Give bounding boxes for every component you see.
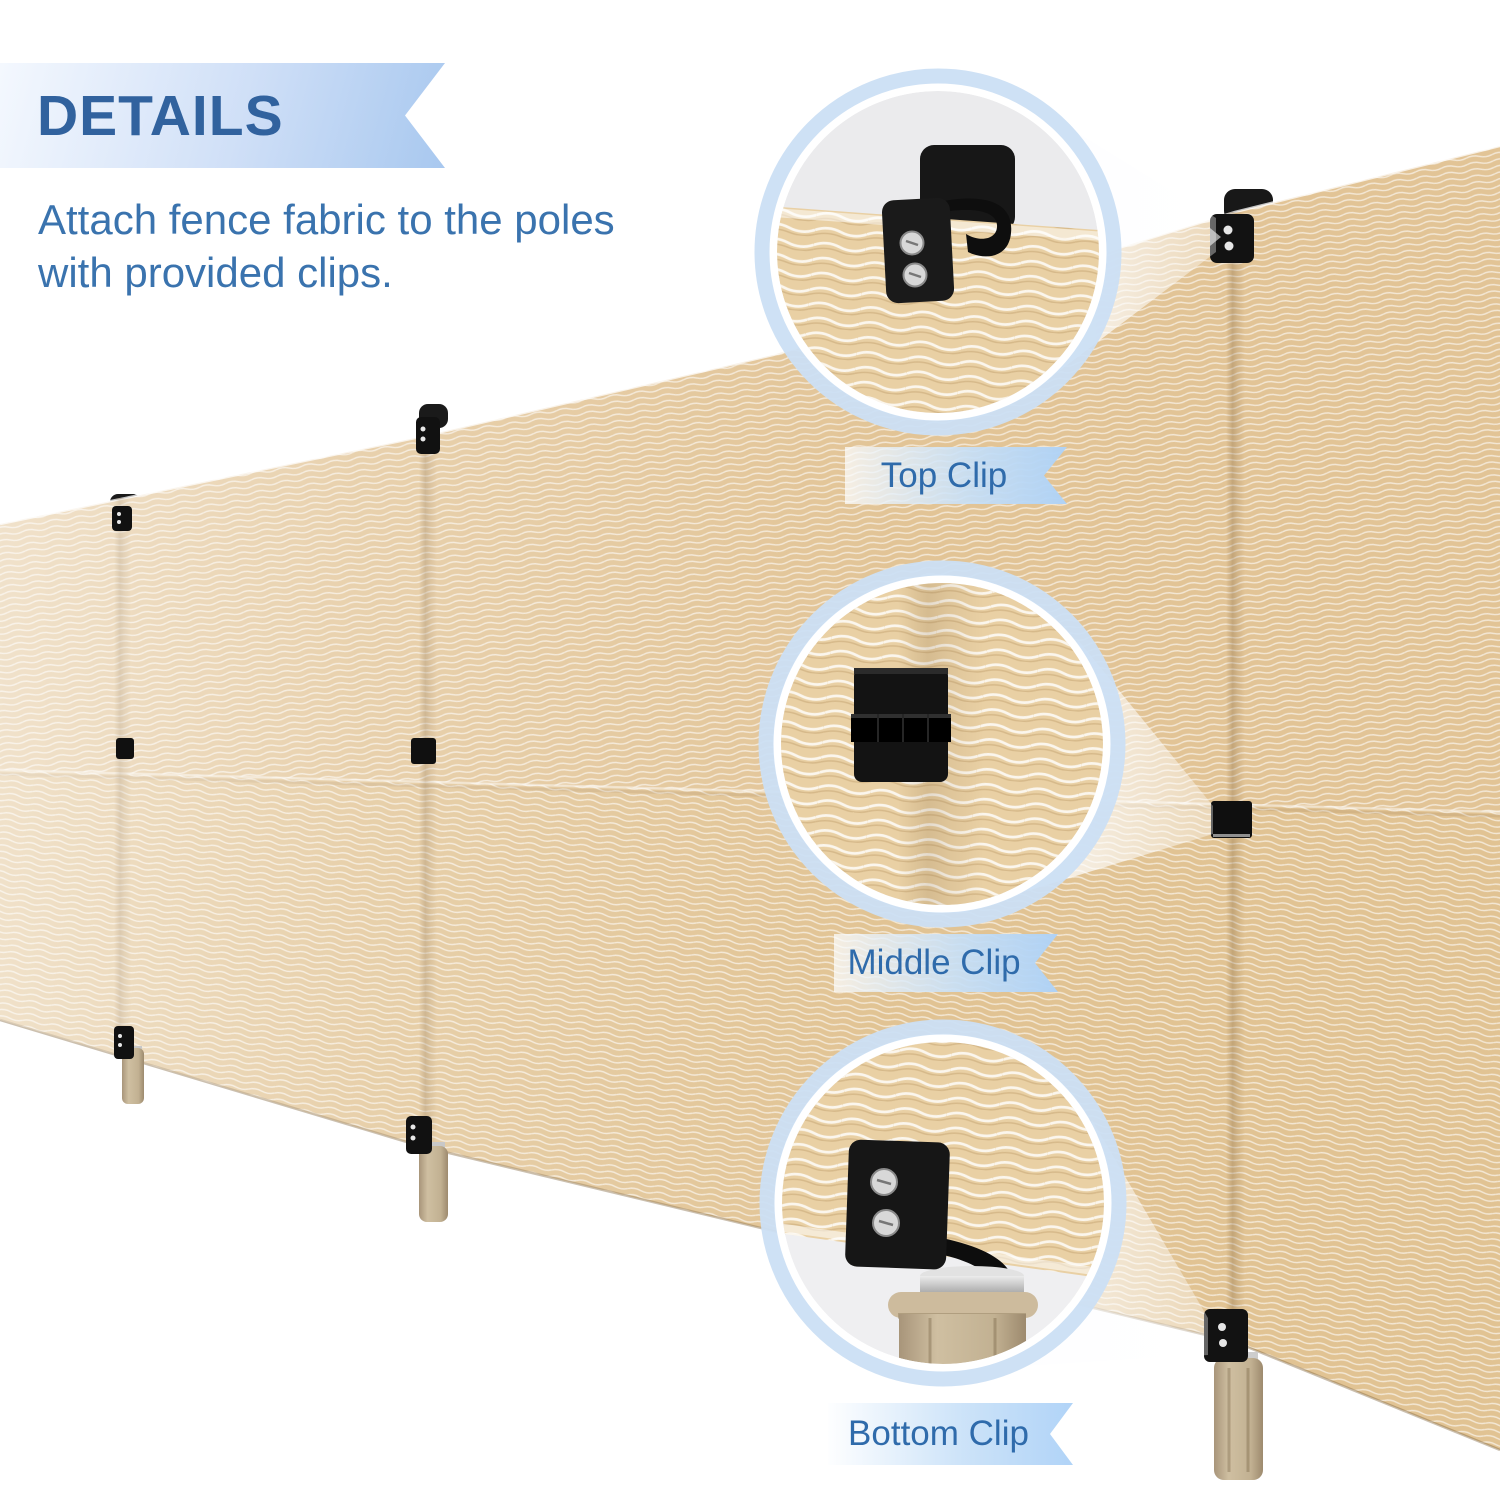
description-text: Attach fence fabric to the poles with pr… (38, 193, 678, 300)
bottom-clip-small (406, 1116, 432, 1154)
clip-strap (851, 714, 951, 742)
bottom-clip-callout-circle (767, 1027, 1119, 1384)
clip-plate (845, 1139, 950, 1269)
middle-clip-small (116, 738, 134, 759)
middle-clip-large (1211, 801, 1252, 838)
middle-clip-callout-circle (766, 568, 1118, 920)
top-clip-small (416, 417, 440, 454)
top-clip-small (112, 506, 132, 531)
bottom-clip-small (114, 1026, 134, 1059)
fence-fabric (0, 146, 1500, 1450)
ribbon-bottom-clip: Bottom Clip (828, 1403, 1073, 1465)
ribbon-middle-clip: Middle Clip (834, 934, 1058, 992)
details-banner: DETAILS (0, 63, 445, 168)
ribbon-top-clip: Top Clip (845, 447, 1067, 504)
top-clip-callout-circle (762, 76, 1114, 428)
ribbon-middle-clip-label: Middle Clip (847, 943, 1020, 983)
top-clip-large (1210, 214, 1254, 263)
details-banner-title: DETAILS (37, 83, 284, 149)
middle-clip-small (411, 738, 436, 764)
bottom-clip-large (1204, 1309, 1248, 1362)
product-detail-infographic: DETAILS Attach fence fabric to the poles… (0, 0, 1500, 1500)
ribbon-top-clip-label: Top Clip (881, 456, 1007, 496)
ribbon-bottom-clip-label: Bottom Clip (848, 1414, 1029, 1454)
